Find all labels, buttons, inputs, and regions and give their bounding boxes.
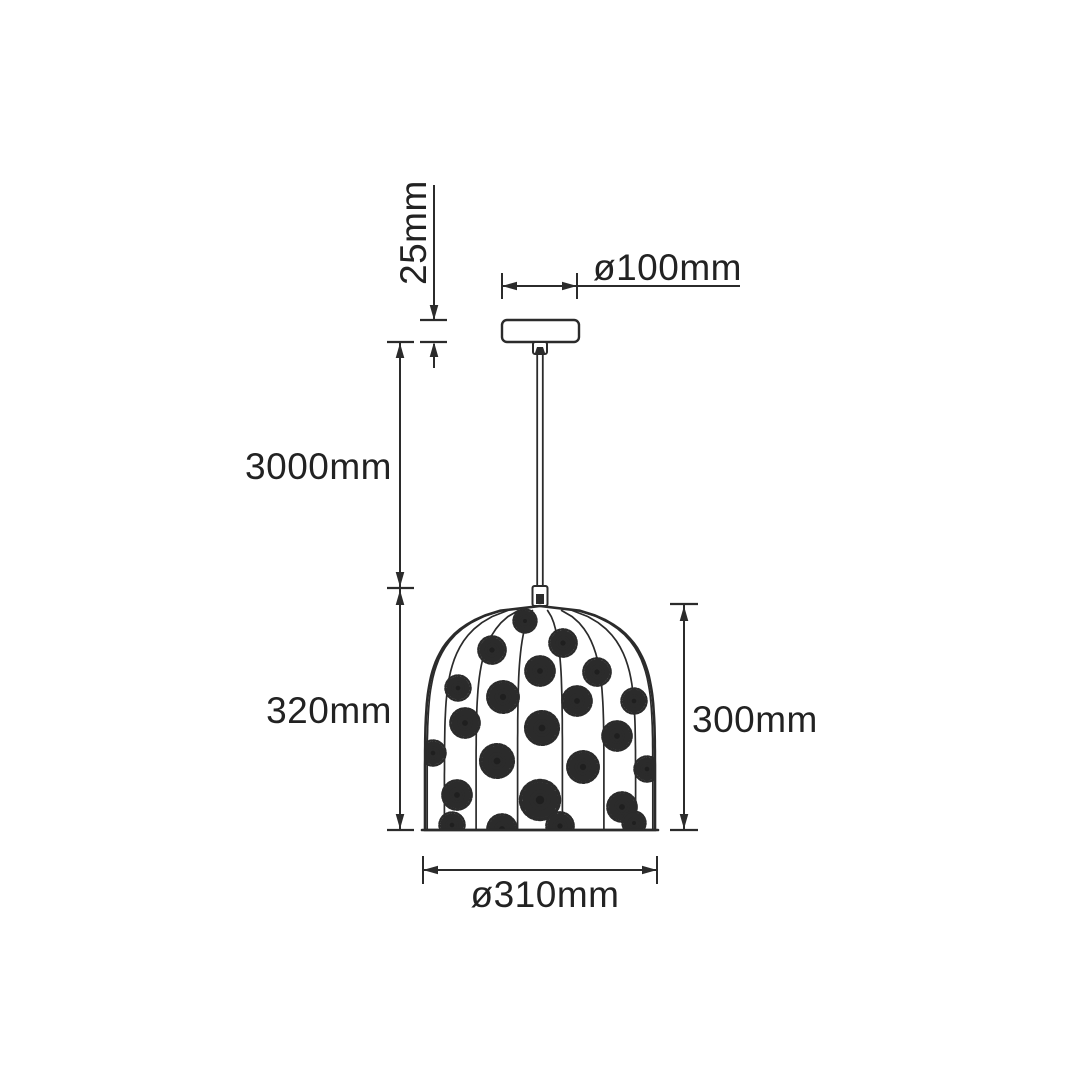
- arrowhead: [396, 343, 405, 358]
- arrowhead: [680, 814, 689, 829]
- shade-ferrule: [533, 586, 548, 606]
- arrowhead: [430, 305, 439, 320]
- arrowhead: [680, 606, 689, 621]
- medallion: [488, 682, 519, 713]
- medallion: [546, 812, 573, 839]
- lamp-dimension-diagram: 25mm ø100mm 3000mm 320mm 300mm ø310mm: [0, 0, 1080, 1080]
- medallion: [451, 709, 480, 738]
- arrowhead: [423, 866, 438, 875]
- canopy-diameter-label: ø100mm: [593, 247, 742, 288]
- medallion: [526, 712, 559, 745]
- pendant-lamp-drawing: [420, 320, 659, 844]
- canopy-height-label: 25mm: [393, 180, 434, 285]
- shade-height-left-label: 320mm: [266, 690, 392, 731]
- medallion: [443, 781, 472, 810]
- medallion: [549, 629, 576, 656]
- medallion: [481, 745, 514, 778]
- diagram-svg: 25mm ø100mm 3000mm 320mm 300mm ø310mm: [0, 0, 1080, 1080]
- arrowhead: [562, 282, 577, 291]
- suspension-cord: [537, 354, 543, 587]
- medallion: [603, 722, 632, 751]
- lamp-shade: [420, 606, 659, 844]
- arrowhead: [396, 814, 405, 829]
- medallion: [478, 636, 505, 663]
- medallion: [583, 658, 610, 685]
- medallion: [621, 688, 646, 713]
- medallion: [563, 687, 592, 716]
- medallion: [526, 657, 555, 686]
- ceiling-canopy: [502, 320, 579, 342]
- shade-diameter-label: ø310mm: [471, 874, 620, 915]
- arrowhead: [430, 342, 439, 357]
- arrowhead: [396, 590, 405, 605]
- medallion: [513, 609, 536, 632]
- canopy-stem: [533, 342, 547, 354]
- medallion: [439, 812, 464, 837]
- shade-height-right-label: 300mm: [692, 699, 818, 740]
- arrowhead: [396, 572, 405, 587]
- medallion: [445, 675, 470, 700]
- arrowhead: [502, 282, 517, 291]
- medallion: [568, 752, 599, 783]
- arrowhead: [642, 866, 657, 875]
- suspension-length-label: 3000mm: [245, 446, 392, 487]
